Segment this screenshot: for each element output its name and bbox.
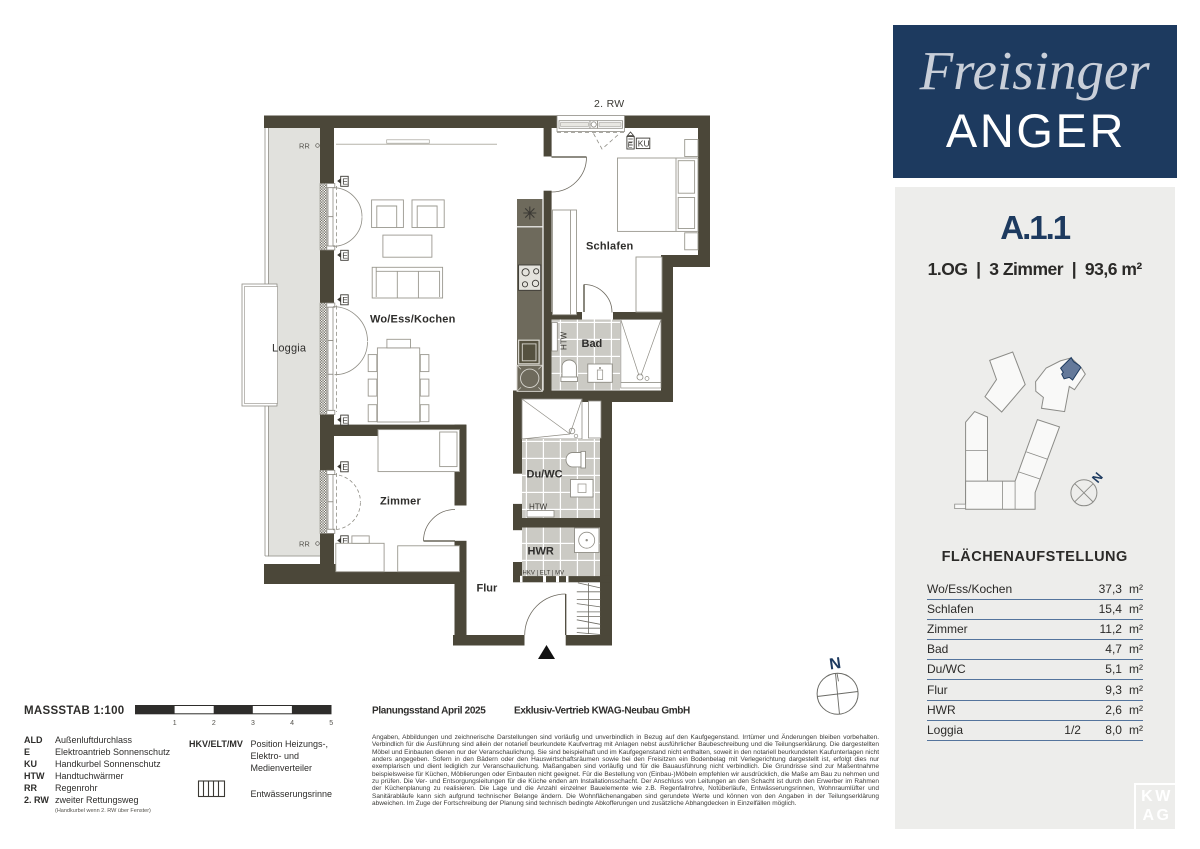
svg-text:HWR: HWR: [528, 546, 554, 558]
svg-text:Loggia: Loggia: [272, 343, 307, 355]
svg-text:E: E: [342, 462, 348, 472]
svg-text:Regenrohr: Regenrohr: [55, 783, 98, 793]
svg-text:Exklusiv-Vertrieb KWAG-Neubau: Exklusiv-Vertrieb KWAG-Neubau GmbH: [514, 706, 690, 717]
svg-text:Wo/Ess/Kochen: Wo/Ess/Kochen: [370, 314, 456, 326]
svg-text:Position Heizungs-,: Position Heizungs-,: [251, 739, 329, 749]
svg-text:HTW: HTW: [24, 771, 45, 781]
svg-text:Flur: Flur: [477, 583, 498, 595]
svg-text:3: 3: [251, 720, 255, 727]
svg-text:RR: RR: [24, 783, 37, 793]
svg-text:Elektroantrieb Sonnenschutz: Elektroantrieb Sonnenschutz: [55, 747, 171, 757]
svg-text:zweiter Rettungsweg: zweiter Rettungsweg: [55, 795, 139, 805]
svg-text:2. RW: 2. RW: [594, 98, 624, 110]
svg-text:E: E: [628, 143, 633, 150]
svg-text:Du/WC: Du/WC: [527, 469, 563, 481]
svg-text:RR: RR: [299, 540, 310, 549]
svg-text:(Handkurbel wenn 2. RW über Fe: (Handkurbel wenn 2. RW über Fenster): [55, 808, 151, 814]
svg-text:2: 2: [212, 720, 216, 727]
svg-text:E: E: [24, 747, 30, 757]
svg-text:Außenluftdurchlass: Außenluftdurchlass: [55, 735, 133, 745]
svg-text:KU: KU: [638, 139, 650, 149]
svg-text:Zimmer: Zimmer: [380, 496, 421, 508]
svg-text:5: 5: [329, 720, 333, 727]
svg-text:Handkurbel Sonnenschutz: Handkurbel Sonnenschutz: [55, 759, 161, 769]
svg-text:Handtuchwärmer: Handtuchwärmer: [55, 771, 124, 781]
svg-text:2. RW: 2. RW: [24, 795, 49, 805]
svg-text:Entwässerungsrinne: Entwässerungsrinne: [251, 789, 333, 799]
svg-text:Elektro- und: Elektro- und: [251, 751, 300, 761]
svg-text:HTW: HTW: [560, 331, 569, 350]
svg-text:1: 1: [173, 720, 177, 727]
svg-text:HKV | ELT | MV: HKV | ELT | MV: [523, 571, 565, 577]
svg-text:E: E: [342, 177, 348, 187]
svg-text:N: N: [828, 655, 842, 673]
svg-text:Planungsstand April 2025: Planungsstand April 2025: [372, 706, 486, 717]
svg-text:HKV/ELT/MV: HKV/ELT/MV: [189, 739, 243, 749]
svg-text:Medienverteiler: Medienverteiler: [251, 763, 313, 773]
svg-text:MASSSTAB 1:100: MASSSTAB 1:100: [24, 705, 124, 717]
svg-text:4: 4: [290, 720, 294, 727]
svg-text:ALD: ALD: [24, 735, 43, 745]
svg-text:E: E: [342, 415, 348, 425]
svg-text:N: N: [1089, 469, 1106, 485]
svg-text:HTW: HTW: [529, 503, 548, 512]
svg-text:E: E: [342, 295, 348, 305]
svg-text:RR: RR: [299, 142, 310, 151]
svg-text:KU: KU: [24, 759, 37, 769]
svg-text:E: E: [342, 251, 348, 261]
svg-text:Bad: Bad: [582, 338, 603, 350]
svg-text:Schlafen: Schlafen: [586, 241, 634, 253]
